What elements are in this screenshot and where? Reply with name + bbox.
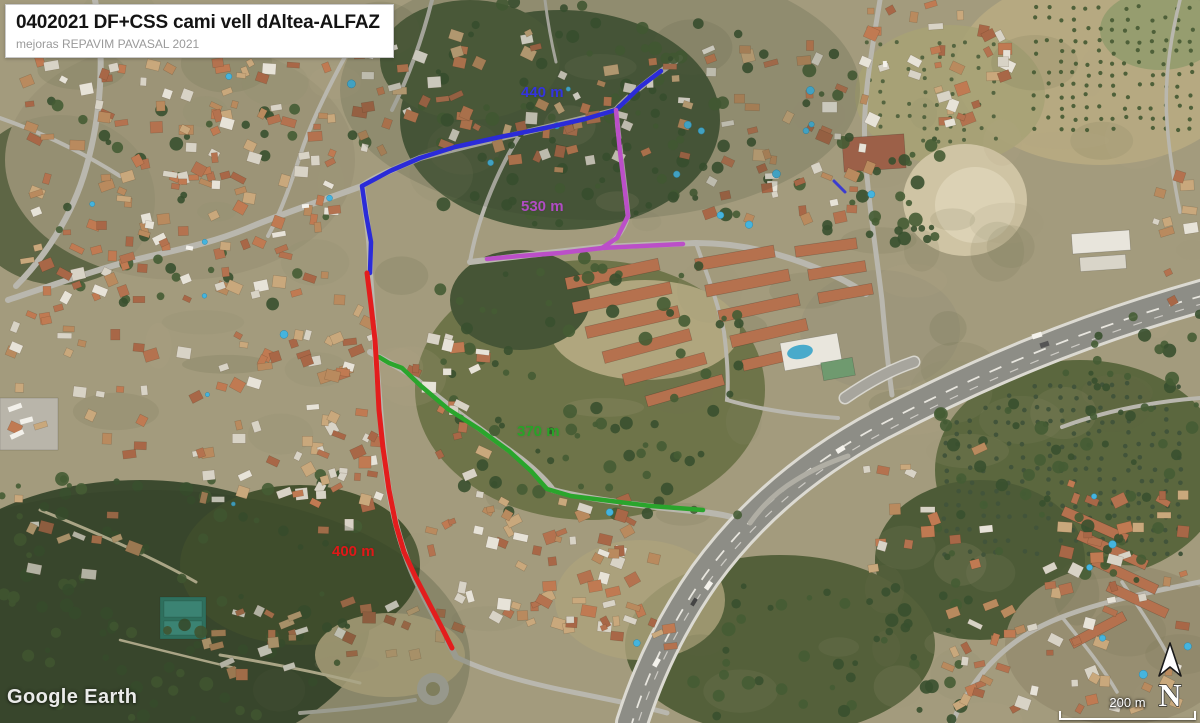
route-label-blue: 440 m (521, 84, 564, 101)
satellite-imagery (0, 0, 1200, 723)
page-title: 0402021 DF+CSS cami vell dAltea-ALFAZ (16, 12, 380, 34)
north-arrow-icon (1159, 643, 1181, 676)
route-label-green: 370 m (517, 423, 560, 440)
title-box: 0402021 DF+CSS cami vell dAltea-ALFAZ me… (5, 4, 394, 58)
north-arrow: N (1148, 638, 1198, 716)
north-label: N (1158, 677, 1181, 713)
page-subtitle: mejoras REPAVIM PAVASAL 2021 (16, 37, 380, 51)
google-earth-watermark: Google Earth (7, 686, 137, 709)
google-earth-viewport[interactable]: 0402021 DF+CSS cami vell dAltea-ALFAZ me… (0, 0, 1200, 723)
route-label-purple: 530 m (521, 198, 564, 215)
route-label-red: 400 m (332, 543, 375, 560)
